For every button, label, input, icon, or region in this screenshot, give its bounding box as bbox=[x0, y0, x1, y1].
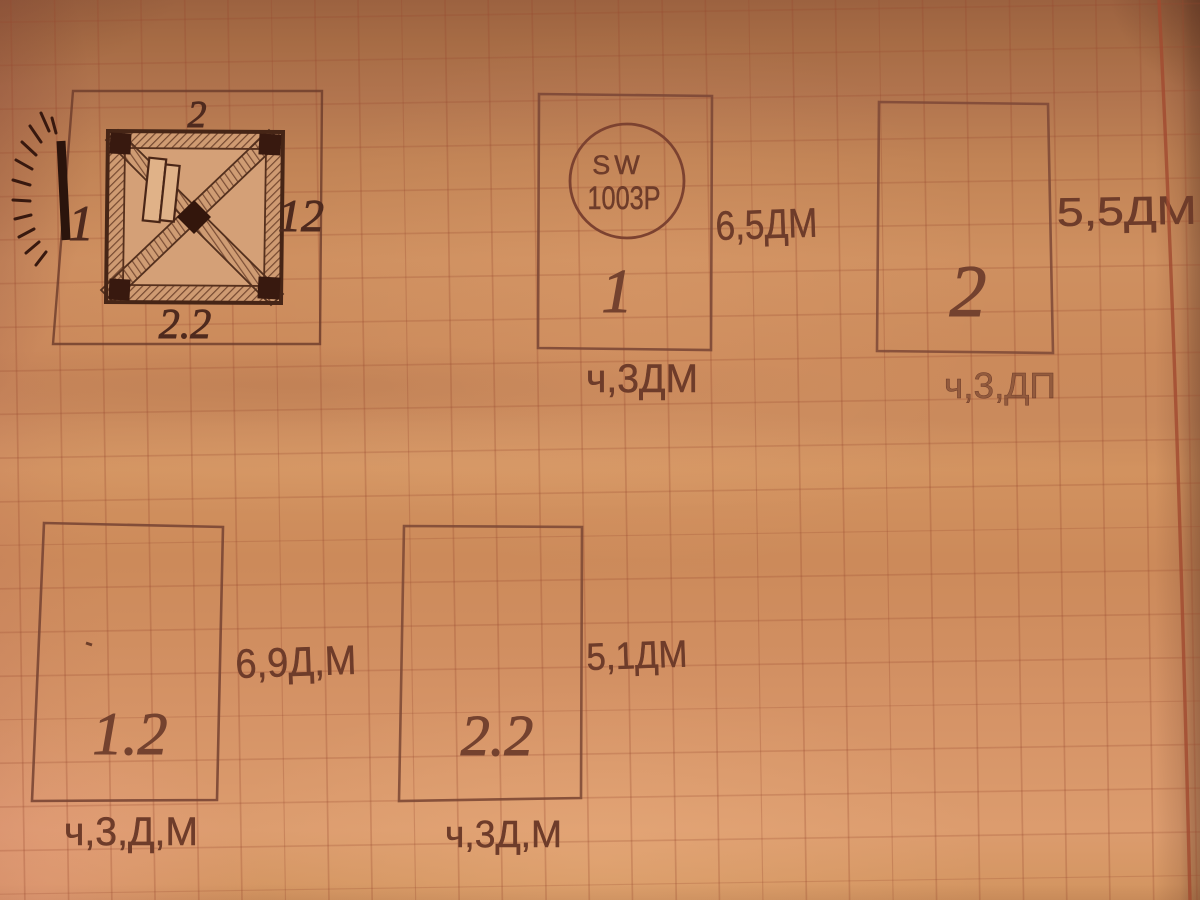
svg-text:6,9Д,М: 6,9Д,М bbox=[235, 637, 358, 687]
svg-text:12: 12 bbox=[278, 190, 324, 241]
svg-text:2: 2 bbox=[950, 251, 987, 333]
svg-text:1: 1 bbox=[602, 258, 633, 326]
svg-text:ч,3,ДП: ч,3,ДП bbox=[944, 365, 1056, 406]
svg-text:2.2: 2.2 bbox=[461, 703, 534, 768]
svg-text:1.2: 1.2 bbox=[93, 701, 168, 767]
svg-text:ч,3ДМ: ч,3ДМ bbox=[586, 357, 698, 401]
svg-text:ч,3Д,М: ч,3Д,М bbox=[445, 814, 562, 856]
svg-text:ч,3,Д,М: ч,3,Д,М bbox=[64, 810, 198, 854]
svg-text:1: 1 bbox=[69, 195, 94, 251]
svg-text:2.2: 2.2 bbox=[159, 302, 212, 348]
svg-text:SW: SW bbox=[592, 150, 644, 180]
svg-text:5,1ДМ: 5,1ДМ bbox=[586, 633, 688, 678]
svg-text:6,5ДМ: 6,5ДМ bbox=[715, 199, 819, 249]
svg-text:1003P: 1003P bbox=[588, 180, 661, 216]
svg-text:5,5ДМ: 5,5ДМ bbox=[1056, 189, 1197, 235]
svg-text:2: 2 bbox=[188, 94, 207, 136]
